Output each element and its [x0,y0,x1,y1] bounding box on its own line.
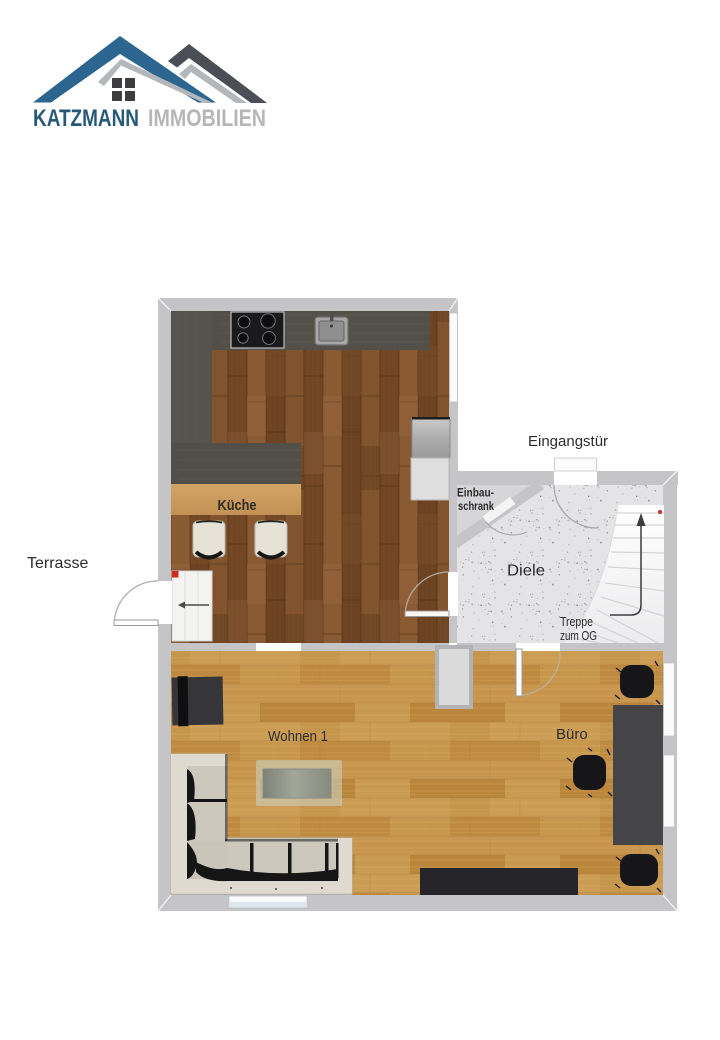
svg-text:zum OG: zum OG [560,628,597,643]
svg-text:Treppe: Treppe [560,614,593,629]
svg-text:Wohnen 1: Wohnen 1 [268,728,328,745]
svg-text:IMMOBILIEN: IMMOBILIEN [148,105,266,132]
svg-text:Eingangstür: Eingangstür [528,433,608,450]
svg-text:Küche: Küche [218,497,257,514]
svg-text:Diele: Diele [507,563,545,580]
svg-text:KATZMANN: KATZMANN [33,105,139,132]
svg-text:Einbau-: Einbau- [457,486,494,500]
svg-text:schrank: schrank [458,499,494,513]
svg-text:Terrasse: Terrasse [27,555,88,572]
svg-text:Büro: Büro [556,726,588,743]
